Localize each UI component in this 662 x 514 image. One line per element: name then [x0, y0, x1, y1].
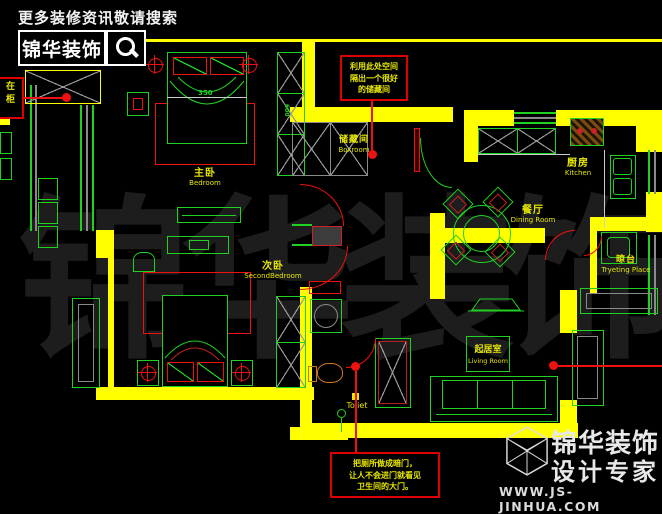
wall-segment [290, 427, 348, 440]
pillow [210, 57, 244, 75]
bay-window-inner [577, 336, 598, 399]
room-label-toilet: Toliet [340, 401, 374, 411]
cabinet-unit [38, 178, 58, 200]
counter-line [478, 154, 570, 155]
pillow [197, 362, 224, 382]
wall-segment [138, 39, 662, 42]
cabinet-cell [479, 129, 518, 153]
brand-logo: 锦华装饰 [18, 30, 106, 66]
chair-cushion [489, 194, 507, 212]
sofa-seats [442, 380, 546, 409]
note-line: 卫生间的大门。 [333, 481, 437, 493]
room-name-zh: 主卧 [183, 168, 227, 179]
header-tagline: 更多装修资讯敬请搜索 [18, 7, 178, 28]
bay-window [78, 304, 94, 382]
cabinet-unit [38, 226, 58, 248]
wall-stub [312, 226, 342, 246]
bed-line [167, 97, 247, 98]
room-name-zh: 餐厅 [510, 205, 556, 216]
shower-area [375, 338, 411, 408]
pillow [167, 362, 194, 382]
wardrobe-cell [278, 53, 304, 94]
leader-dot [368, 150, 377, 159]
shower-hatch [378, 341, 407, 404]
tv-set [468, 296, 524, 312]
cabinet-unit [38, 202, 58, 224]
note-line: 利用此处空间 [343, 61, 405, 73]
desk-item [189, 240, 209, 250]
leader-line [558, 365, 662, 367]
room-label-drying: 晾台 Tryeting Place [592, 256, 660, 275]
leader-dot [549, 361, 558, 370]
leader-line [355, 371, 357, 452]
note-top: 利用此处空间 隔出一个很好 的储藏间 [340, 55, 408, 101]
cabinet-cell [518, 129, 556, 153]
wall-segment [636, 110, 662, 152]
note-line: 柜 [0, 94, 22, 107]
window-lines [654, 150, 656, 194]
window-lines [514, 117, 556, 119]
chair-cushion [491, 244, 509, 262]
room-label-kitchen: 厨房 Kitchen [558, 158, 598, 178]
bay-window [586, 293, 652, 309]
sofa-divider [512, 380, 513, 409]
note-line: 的储藏间 [343, 84, 405, 96]
stove [570, 118, 604, 146]
leader-line [371, 101, 373, 153]
dimension-text: 600 [283, 104, 290, 117]
room-label-master: 主卧 Bedroom [183, 168, 227, 188]
note-line: 把厕所做成暗门， [333, 458, 437, 470]
window-lines [92, 105, 94, 231]
target-symbol [148, 58, 163, 73]
desk [167, 236, 229, 254]
room-name-en: Living Room [467, 357, 509, 365]
room-name-zh: 储藏间 [332, 136, 376, 146]
toilet-tank [308, 366, 317, 382]
room-name-zh: 晾台 [592, 256, 660, 266]
note-left: 在 柜 [0, 77, 24, 119]
night-stand [127, 92, 149, 116]
sink-basin [613, 178, 632, 195]
leader-dot [62, 93, 71, 102]
window-lines [514, 122, 556, 124]
room-name-zh: 次卧 [244, 261, 302, 272]
burner [577, 128, 583, 134]
note-bottom: 把厕所做成暗门， 让人不会进门就看见 卫生间的大门。 [330, 452, 440, 498]
window-lines [80, 105, 82, 231]
room-label-second: 次卧 SecondBedroom [244, 261, 302, 281]
room-label-dining: 餐厅 Dining Room [510, 205, 556, 225]
second-wardrobe [276, 296, 306, 388]
burner [591, 128, 597, 134]
leader-line [24, 97, 66, 99]
search-icon-handle [129, 48, 139, 58]
room-name-en: Kitchen [558, 170, 598, 178]
counter-line [604, 150, 605, 228]
footer-subtitle: 设计专家 [551, 452, 659, 487]
bath-vanity [309, 281, 341, 294]
toilet [317, 363, 343, 383]
window-lines [648, 150, 650, 194]
master-bed [167, 52, 247, 144]
balcony-seat [0, 158, 12, 180]
night-stand-detail [133, 98, 143, 110]
drain-stem [341, 418, 342, 432]
balcony-seat [0, 132, 12, 154]
window-lines [30, 85, 32, 231]
chair-cushion [449, 196, 467, 214]
dimension-text: 350 [198, 89, 213, 97]
wall-segment [108, 232, 114, 390]
room-name-en: Tryeting Place [592, 267, 660, 275]
entry-door-leaf [414, 128, 420, 172]
chair-cushion [447, 242, 465, 260]
room-name-en: Bedroom [183, 180, 227, 188]
closet-cell [293, 123, 331, 175]
wardrobe-cell [277, 297, 305, 343]
window-lines [86, 105, 88, 231]
room-name-en: Toliet [340, 402, 374, 411]
sofa-divider [477, 380, 478, 409]
pillow [173, 57, 207, 75]
room-name-en: SecondBedroom [244, 273, 302, 281]
living-bay-window [572, 330, 604, 406]
cube-logo-icon [505, 424, 549, 478]
room-name-en: Dining Room [510, 217, 556, 225]
room-name-zh: 厨房 [558, 158, 598, 169]
wardrobe-cell [277, 343, 305, 388]
note-line: 让人不会进门就看见 [333, 470, 437, 482]
target-symbol [141, 366, 156, 381]
wall-segment [560, 290, 577, 333]
target-symbol [242, 58, 257, 73]
room-name-zh: 起居室 [467, 342, 509, 355]
washing-machine [310, 299, 342, 333]
cabinet-line [182, 215, 236, 216]
living-label-box: 起居室 Living Room [466, 336, 510, 372]
sink-basin [613, 158, 632, 175]
master-tv-cabinet [177, 207, 241, 223]
wall-segment [590, 217, 662, 231]
window-lines [35, 85, 37, 231]
sofa [430, 376, 558, 422]
washer-drum [314, 304, 338, 328]
search-box [106, 30, 146, 66]
note-line: 隔出一个很好 [343, 73, 405, 85]
wall-segment [464, 110, 514, 126]
leader-dot [351, 362, 360, 371]
sofa-back-line [436, 414, 552, 415]
note-line: 在 [0, 81, 22, 94]
blanket-lines [163, 328, 227, 362]
wall-segment [96, 387, 314, 400]
desk-chair [133, 252, 155, 272]
target-symbol [235, 366, 250, 381]
second-bed [162, 295, 228, 387]
wall-segment [430, 213, 445, 299]
brand-logo-text: 锦华装饰 [22, 35, 102, 62]
kitchen-sink [610, 155, 636, 199]
blanket-lines [168, 75, 246, 141]
window-lines [514, 112, 556, 114]
kitchen-cabinets [478, 128, 556, 154]
